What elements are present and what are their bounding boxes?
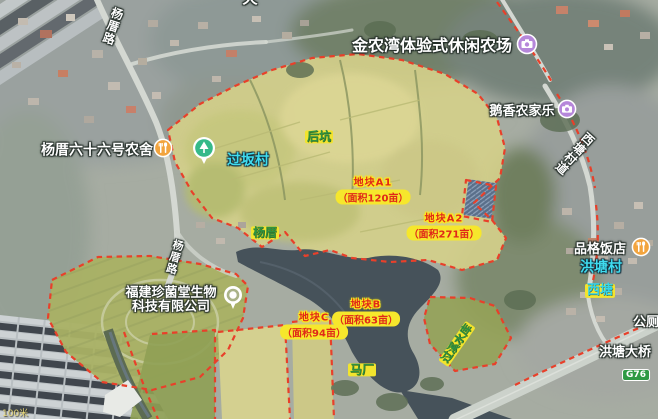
highway-shield-g76: G76 bbox=[622, 369, 650, 381]
place-label-yangcuo: 杨厝 bbox=[251, 226, 279, 239]
poi-label-toilet: 公厕 bbox=[633, 316, 658, 330]
parcel-area: （面积271亩） bbox=[407, 226, 482, 241]
camera-icon[interactable] bbox=[516, 33, 538, 59]
restaurant-icon[interactable] bbox=[631, 237, 651, 261]
restaurant-icon[interactable] bbox=[153, 138, 173, 162]
satellite-imagery bbox=[0, 0, 658, 419]
poi-label-jinnongwan[interactable]: 金农湾体验式休闲农场 bbox=[352, 37, 512, 55]
place-label-machang: 马厂 bbox=[348, 363, 376, 376]
parcel-label-A1: 地块A1 （面积120亩） bbox=[336, 174, 411, 205]
poi-label-exiang[interactable]: 鹅香农家乐 bbox=[489, 105, 554, 119]
parcel-area: （面积94亩） bbox=[280, 325, 348, 340]
parcel-label-C: 地块C （面积94亩） bbox=[280, 309, 348, 340]
poi-label-bridge: 洪塘大桥 bbox=[599, 346, 651, 360]
poi-label-company[interactable]: 福建珍菌堂生物 科技有限公司 bbox=[125, 287, 216, 316]
company-name-line2: 科技有限公司 bbox=[125, 301, 216, 315]
map-canvas[interactable]: 杨厝路 天 金农湾体验式休闲农场 鹅香农家乐 杨厝六十六号农舍 过坂村 bbox=[0, 0, 658, 419]
village-label-guoban: 过坂村 bbox=[227, 153, 269, 168]
poi-ring-icon[interactable] bbox=[222, 284, 244, 314]
place-label-xitang: 西塘 bbox=[585, 284, 615, 298]
poi-label-yangcuo66[interactable]: 杨厝六十六号农舍 bbox=[41, 143, 153, 158]
parcel-name: 地块A2 bbox=[425, 210, 464, 225]
village-label-hongtang: 洪塘村 bbox=[580, 260, 622, 275]
scale-label: 100米 bbox=[2, 406, 28, 419]
parcel-name: 地块C bbox=[299, 309, 329, 324]
parcel-area: （面积120亩） bbox=[336, 190, 411, 205]
road-label-partial: 天 bbox=[242, 0, 257, 6]
poi-label-pinge[interactable]: 品格饭店 bbox=[574, 243, 626, 257]
parcel-name: 地块A1 bbox=[354, 174, 393, 189]
parcel-label-A2: 地块A2 （面积271亩） bbox=[407, 210, 482, 241]
place-label-houkeng: 后坑 bbox=[305, 130, 333, 143]
park-tree-icon[interactable] bbox=[191, 136, 217, 170]
parcel-name: 地块B bbox=[351, 296, 382, 311]
camera-icon[interactable] bbox=[557, 99, 577, 123]
